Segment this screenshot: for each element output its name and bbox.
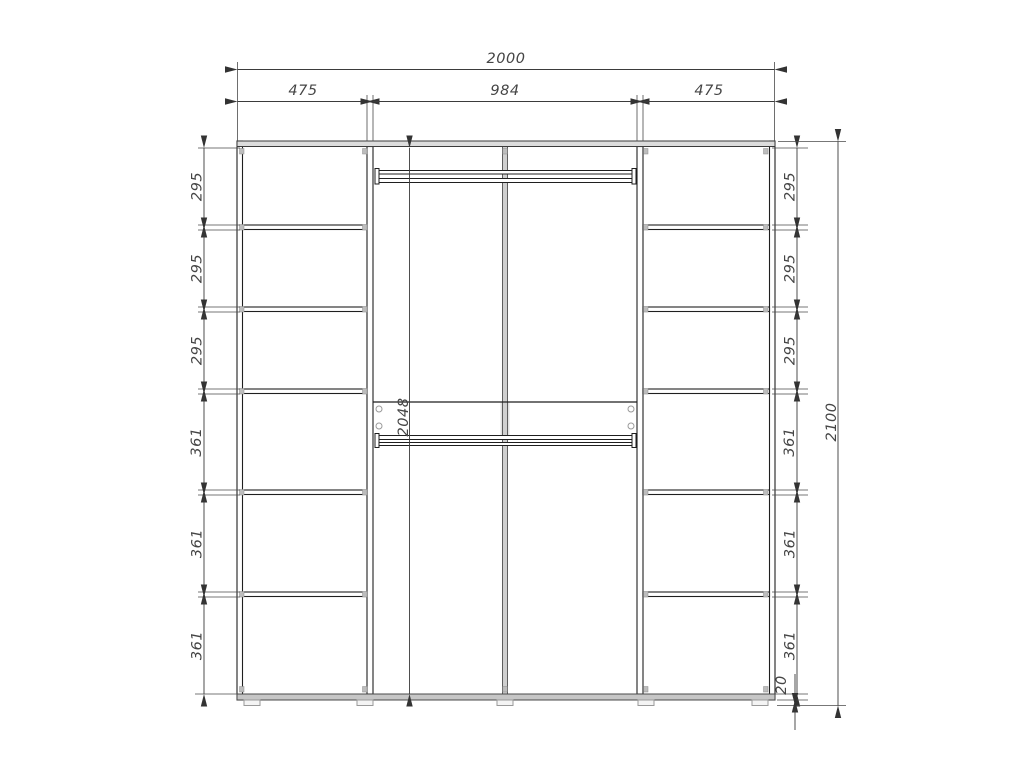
cam-lock-fitting (363, 307, 368, 313)
cam-lock-fitting (764, 687, 769, 693)
dim-label-center-section-width: 984 (490, 83, 519, 99)
cam-lock-fitting (240, 592, 245, 598)
cam-lock-fitting (240, 149, 245, 155)
left-divider-panel (367, 147, 373, 695)
cam-lock-fitting (240, 307, 245, 313)
shelf (643, 307, 770, 312)
dim-label-right-4: 361 (782, 427, 798, 456)
cam-lock-fitting (644, 307, 649, 313)
dim-label-left-3: 295 (190, 336, 206, 365)
dim-label-left-2: 295 (190, 254, 206, 283)
bottom-panel (237, 694, 775, 700)
cam-lock-fitting (644, 490, 649, 496)
foot (497, 700, 513, 706)
right-divider-panel (637, 147, 643, 695)
cam-lock-fitting (363, 389, 368, 395)
foot (244, 700, 260, 706)
shelf (643, 225, 770, 230)
dim-label-base-height: 20 (774, 675, 790, 694)
dim-label-right-3: 295 (783, 336, 799, 365)
dim-label-left-4: 361 (189, 427, 205, 456)
cam-lock-fitting (764, 307, 769, 313)
shelf (643, 389, 770, 394)
cam-lock-fitting (644, 592, 649, 598)
cam-lock-fitting (363, 592, 368, 598)
cam-lock-fitting (363, 149, 368, 155)
cam-lock-fitting (363, 687, 368, 693)
cam-lock-fitting (644, 687, 649, 693)
cam-lock-fitting (644, 149, 649, 155)
dim-label-total-width: 2000 (487, 51, 526, 67)
dim-label-left-section-width: 475 (288, 83, 317, 99)
cam-lock-fitting (503, 149, 508, 155)
shelf (243, 389, 368, 394)
shelf (243, 592, 368, 597)
cam-lock-fitting (240, 490, 245, 496)
center-divider-panel (503, 147, 508, 695)
cam-lock-fitting (764, 225, 769, 231)
cam-lock-fitting (363, 225, 368, 231)
dim-label-right-5: 361 (783, 529, 799, 558)
dim-label-left-6: 361 (190, 631, 206, 660)
cam-lock-fitting (363, 490, 368, 496)
dim-label-right-1: 295 (783, 172, 799, 201)
dim-label-interior-height: 2048 (396, 398, 412, 437)
page-background (0, 0, 1024, 768)
cam-lock-fitting (503, 687, 508, 693)
shelf (643, 490, 770, 495)
cam-lock-fitting (764, 490, 769, 496)
cam-lock-fitting (644, 225, 649, 231)
foot (638, 700, 654, 706)
top-panel (237, 141, 775, 147)
wardrobe-dimension-drawing: 2000 475 984 475 295 295 295 361 361 361… (0, 0, 1024, 768)
shelf (243, 307, 368, 312)
shelf (643, 592, 770, 597)
cam-lock-fitting (764, 592, 769, 598)
dim-label-left-5: 361 (190, 529, 206, 558)
dim-label-right-6: 361 (783, 631, 799, 660)
foot (357, 700, 373, 706)
dim-label-total-height: 2100 (824, 403, 840, 442)
cam-lock-fitting (644, 389, 649, 395)
cam-lock-fitting (240, 225, 245, 231)
shelf (243, 225, 368, 230)
drawing-page: 2000 475 984 475 295 295 295 361 361 361… (0, 0, 1024, 768)
cam-lock-fitting (240, 389, 245, 395)
cam-lock-fitting (764, 389, 769, 395)
foot (752, 700, 768, 706)
shelf (243, 490, 368, 495)
dim-label-left-1: 295 (190, 172, 206, 201)
cam-lock-fitting (240, 687, 245, 693)
dim-label-right-section-width: 475 (694, 83, 723, 99)
cam-lock-fitting (764, 149, 769, 155)
dim-label-right-2: 295 (783, 254, 799, 283)
